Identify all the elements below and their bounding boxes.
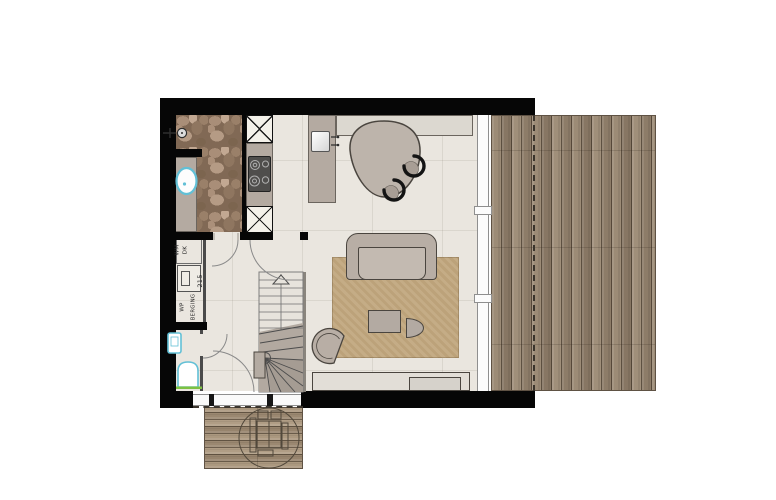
- toilet-door-arc: [203, 334, 227, 358]
- dining-table: [350, 121, 420, 197]
- washbasin-icon: [177, 168, 197, 194]
- cooktop-burners: [250, 161, 269, 187]
- armchair: [312, 329, 344, 364]
- bathroom-door-jambs: [214, 233, 238, 240]
- toilet-room-fixtures: [168, 333, 202, 389]
- staircase: [254, 272, 303, 392]
- threshold-green-line: [176, 387, 202, 390]
- overhang-dashed-line-terrace: [533, 115, 535, 391]
- shower-icon: [163, 128, 187, 138]
- dining-set: [350, 121, 424, 201]
- entrance-door-panel-marks: [209, 394, 273, 406]
- linework-overlay: [0, 0, 776, 500]
- picnic-table-icon: [239, 408, 299, 468]
- floor-plan-canvas: WM DK 215 WP BERGING: [0, 0, 776, 500]
- overhang-dashed-line-entrance: [193, 406, 303, 408]
- stairs-newel-block: [254, 352, 265, 378]
- hand-basin-icon: [168, 333, 181, 353]
- entrance-door-arc: [213, 351, 254, 392]
- bathroom-door-arc: [212, 240, 238, 266]
- toilet-icon: [178, 362, 198, 387]
- kitchen-faucet-icon: [331, 136, 339, 147]
